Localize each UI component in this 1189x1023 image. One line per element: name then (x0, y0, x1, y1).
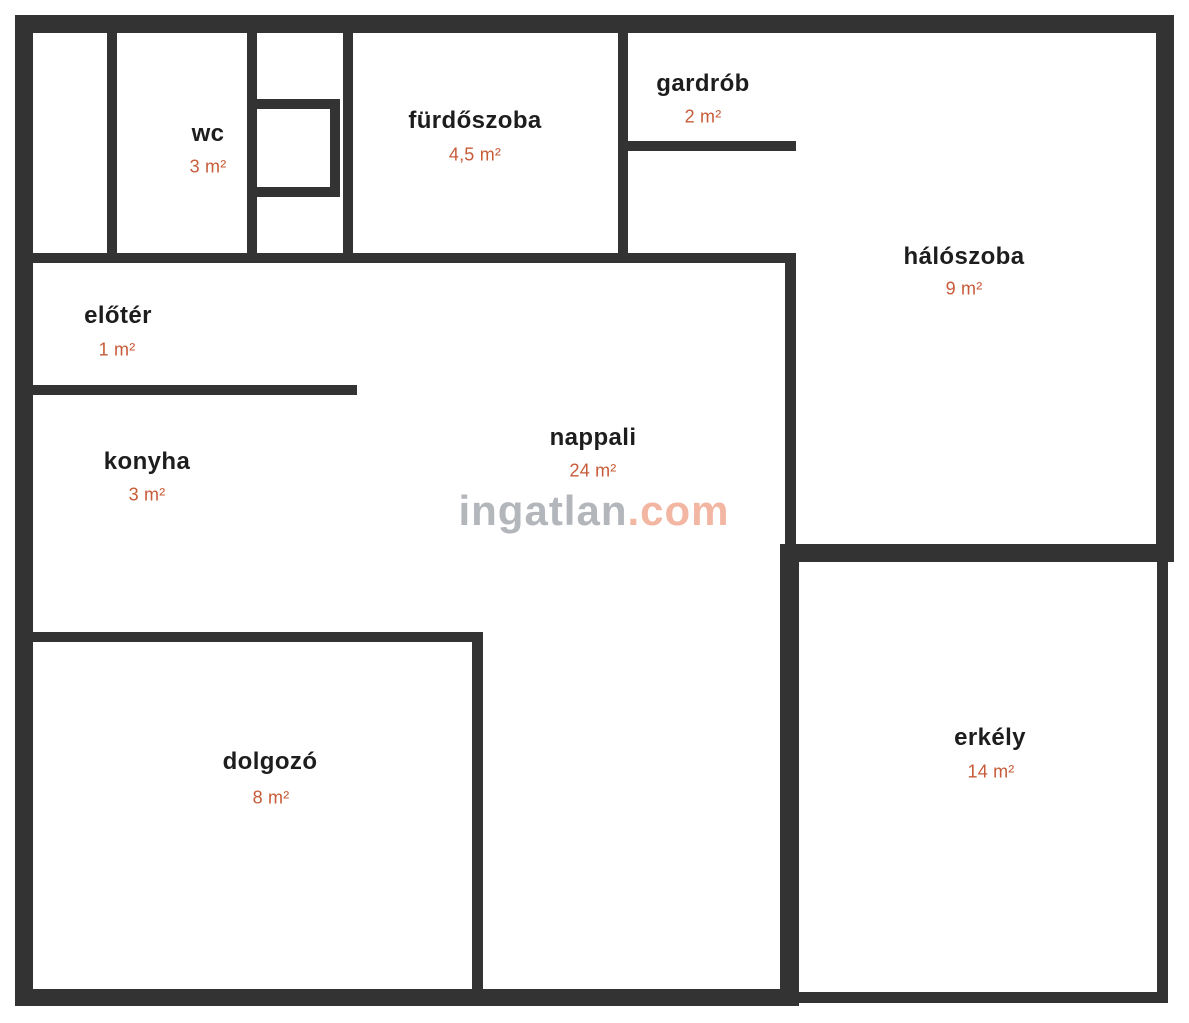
room-label-furdoszoba: fürdőszoba (408, 107, 541, 135)
wall-outer-right (1156, 15, 1174, 562)
room-area-nappali: 24 m² (569, 461, 616, 482)
wall-wc-right (247, 33, 257, 253)
room-label-dolgozo: dolgozó (223, 748, 318, 776)
room-label-nappali: nappali (550, 424, 637, 452)
wall-outer-left (15, 15, 33, 1006)
room-area-erkely: 14 m² (967, 762, 1014, 783)
wall-furdoszoba-left (343, 33, 353, 253)
wall-haloszoba-bottom (780, 544, 1174, 562)
watermark-tld: .com (627, 487, 729, 534)
wall-wc-left (107, 33, 117, 253)
wall-outer-top (15, 15, 1174, 33)
watermark-brand: ingatlan (458, 487, 627, 534)
room-area-wc: 3 m² (190, 157, 227, 178)
wall-shaft-bottom (257, 187, 340, 197)
room-area-dolgozo: 8 m² (253, 788, 290, 809)
wall-dolgozo-top (33, 632, 483, 642)
wall-haloszoba-left (785, 263, 796, 544)
room-label-eloter: előtér (84, 302, 152, 330)
wall-erkely-left (780, 544, 799, 1006)
wall-gardrob-bottom (628, 141, 796, 151)
floor-plan: wc 3 m² fürdőszoba 4,5 m² gardrób 2 m² h… (0, 0, 1189, 1023)
room-label-haloszoba: hálószoba (904, 243, 1025, 271)
wall-outer-bottom (15, 989, 799, 1006)
wall-shaft-right (330, 99, 340, 197)
wall-erkely-right (1157, 562, 1168, 1003)
wall-shaft-top (257, 99, 340, 109)
room-area-furdoszoba: 4,5 m² (449, 145, 501, 166)
room-label-konyha: konyha (104, 448, 190, 476)
wall-dolgozo-right (472, 642, 483, 989)
room-area-konyha: 3 m² (129, 485, 166, 506)
watermark: ingatlan.com (458, 487, 729, 535)
room-area-eloter: 1 m² (99, 340, 136, 361)
wall-gardrob-left (618, 33, 628, 263)
room-area-gardrob: 2 m² (685, 107, 722, 128)
room-label-erkely: erkély (954, 724, 1026, 752)
wall-eloter-bottom (33, 385, 357, 395)
room-area-haloszoba: 9 m² (946, 279, 983, 300)
room-label-wc: wc (192, 120, 225, 148)
wall-erkely-bottom (799, 992, 1168, 1003)
wall-top-rooms-bottom (33, 253, 796, 263)
room-label-gardrob: gardrób (656, 70, 749, 98)
